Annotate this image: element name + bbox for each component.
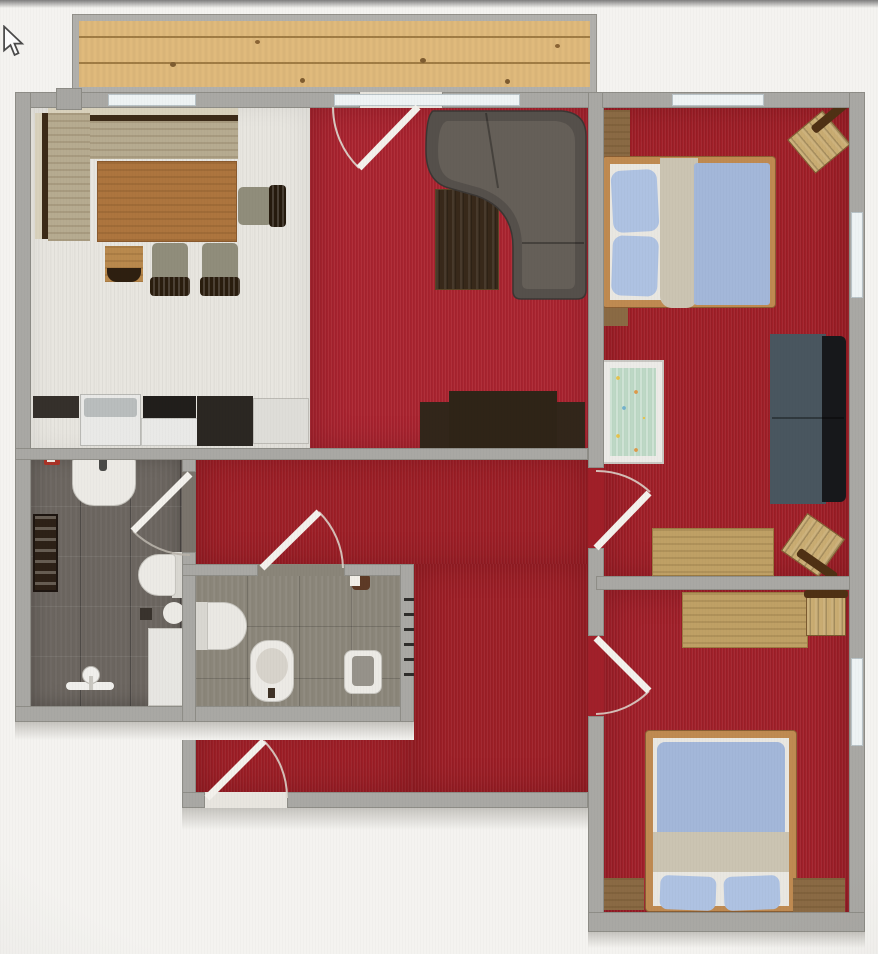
crib-mattress[interactable] xyxy=(610,368,656,456)
deck-knot xyxy=(420,58,426,63)
wall-center-vertical xyxy=(588,548,604,636)
wall-center-vertical xyxy=(588,92,604,468)
wall-bedroom-divider xyxy=(596,576,850,590)
bed2-duvet[interactable] xyxy=(657,742,785,836)
threshold-bedroom2-door xyxy=(588,636,604,716)
corner-bench-seat-left[interactable] xyxy=(48,113,90,241)
wall-wc-top xyxy=(182,564,258,576)
deck-knot xyxy=(170,62,176,67)
kitchen-cabinet-dark[interactable] xyxy=(197,396,253,446)
bed1-pillow[interactable] xyxy=(611,235,659,297)
tv-sideboard-mid[interactable] xyxy=(449,391,557,448)
window-bedroom1-right xyxy=(851,212,863,298)
wall-center-vertical xyxy=(588,716,604,932)
kitchen-counter-mid[interactable] xyxy=(141,418,203,446)
bed1-duvet[interactable] xyxy=(694,163,770,305)
deck-knot xyxy=(505,79,510,84)
kitchen-counter-dark[interactable] xyxy=(33,396,79,418)
exterior-apron xyxy=(182,808,588,830)
dining-chair-back[interactable] xyxy=(269,185,286,227)
dining-chair-legs[interactable] xyxy=(150,277,190,296)
balcony-deck xyxy=(79,21,590,87)
dining-table[interactable] xyxy=(97,161,237,242)
exterior-apron xyxy=(588,932,865,948)
wc-urinal-basin[interactable] xyxy=(352,656,374,686)
bedroom1-sofa-back[interactable] xyxy=(822,336,846,502)
bedroom1-sofa-seat[interactable] xyxy=(770,334,826,504)
threshold-bedroom1-door xyxy=(588,468,604,548)
corridor-floor-top xyxy=(195,456,588,566)
wall-left-outer xyxy=(15,92,31,722)
kitchen-sink-basin[interactable] xyxy=(84,398,137,417)
bed2-pillow[interactable] xyxy=(659,875,716,911)
window-living-top xyxy=(334,94,520,106)
threshold-entry-door xyxy=(205,792,287,808)
threshold-bath-door xyxy=(182,472,196,552)
exterior-apron xyxy=(15,722,414,740)
desk-bedroom2[interactable] xyxy=(682,592,808,648)
deck-knot xyxy=(255,40,260,44)
wall-bath-corridor xyxy=(182,552,196,722)
towel-radiator[interactable] xyxy=(33,514,58,592)
wall-bottom-right-block xyxy=(588,912,865,932)
deck-knot xyxy=(555,44,560,48)
dresser-bedroom2[interactable] xyxy=(602,878,644,910)
bedroom1-sofa-seam[interactable] xyxy=(772,417,844,419)
balcony-support xyxy=(56,88,82,110)
kitchen-stove[interactable] xyxy=(143,396,196,418)
kitchen-cabinet-light[interactable] xyxy=(253,398,309,444)
threshold-wc-door xyxy=(258,564,344,576)
window-bedroom1-top xyxy=(672,94,764,106)
coffee-table[interactable] xyxy=(435,189,499,290)
window-dining-top xyxy=(108,94,196,106)
wall-corridor-bottom xyxy=(182,792,205,808)
dining-chair-seat[interactable] xyxy=(238,187,272,225)
toilet-paper-holder[interactable] xyxy=(140,608,152,620)
shower-stem[interactable] xyxy=(89,676,93,690)
floorplan-canvas xyxy=(0,0,878,954)
deck-knot xyxy=(300,78,305,83)
wc-brush-holder-lid[interactable] xyxy=(350,576,360,586)
small-bench-detail[interactable] xyxy=(107,268,141,282)
bed2-blanket-band[interactable] xyxy=(653,832,789,872)
mouse-cursor-icon xyxy=(2,25,28,57)
bed2-pillow[interactable] xyxy=(723,875,780,911)
desk-bedroom1[interactable] xyxy=(652,528,774,576)
bidet-tap[interactable] xyxy=(268,688,275,698)
window-bedroom2-right xyxy=(851,658,863,746)
wall-kitchen-corridor xyxy=(15,448,588,460)
wall-corridor-bottom xyxy=(287,792,588,808)
desk-chair-bedroom2[interactable] xyxy=(806,594,846,636)
wc-toilet-cistern[interactable] xyxy=(196,602,207,650)
bidet-basin[interactable] xyxy=(256,648,288,684)
tv-sideboard-right[interactable] xyxy=(557,402,585,448)
bathroom-toilet-bowl[interactable] xyxy=(138,554,176,596)
corridor-floor-right xyxy=(412,564,588,792)
wc-wall-radiator xyxy=(404,598,414,686)
bed1-pillow[interactable] xyxy=(610,169,659,233)
tv-sideboard-left[interactable] xyxy=(420,402,449,448)
dining-chair-legs[interactable] xyxy=(200,277,240,296)
wardrobe-bedroom1[interactable] xyxy=(602,110,630,158)
desk-chair-back-bedroom2[interactable] xyxy=(804,590,848,598)
bed1-blanket[interactable] xyxy=(660,158,698,308)
dresser-bedroom2[interactable] xyxy=(793,878,845,912)
wall-bath-wc-bottom xyxy=(15,706,414,722)
